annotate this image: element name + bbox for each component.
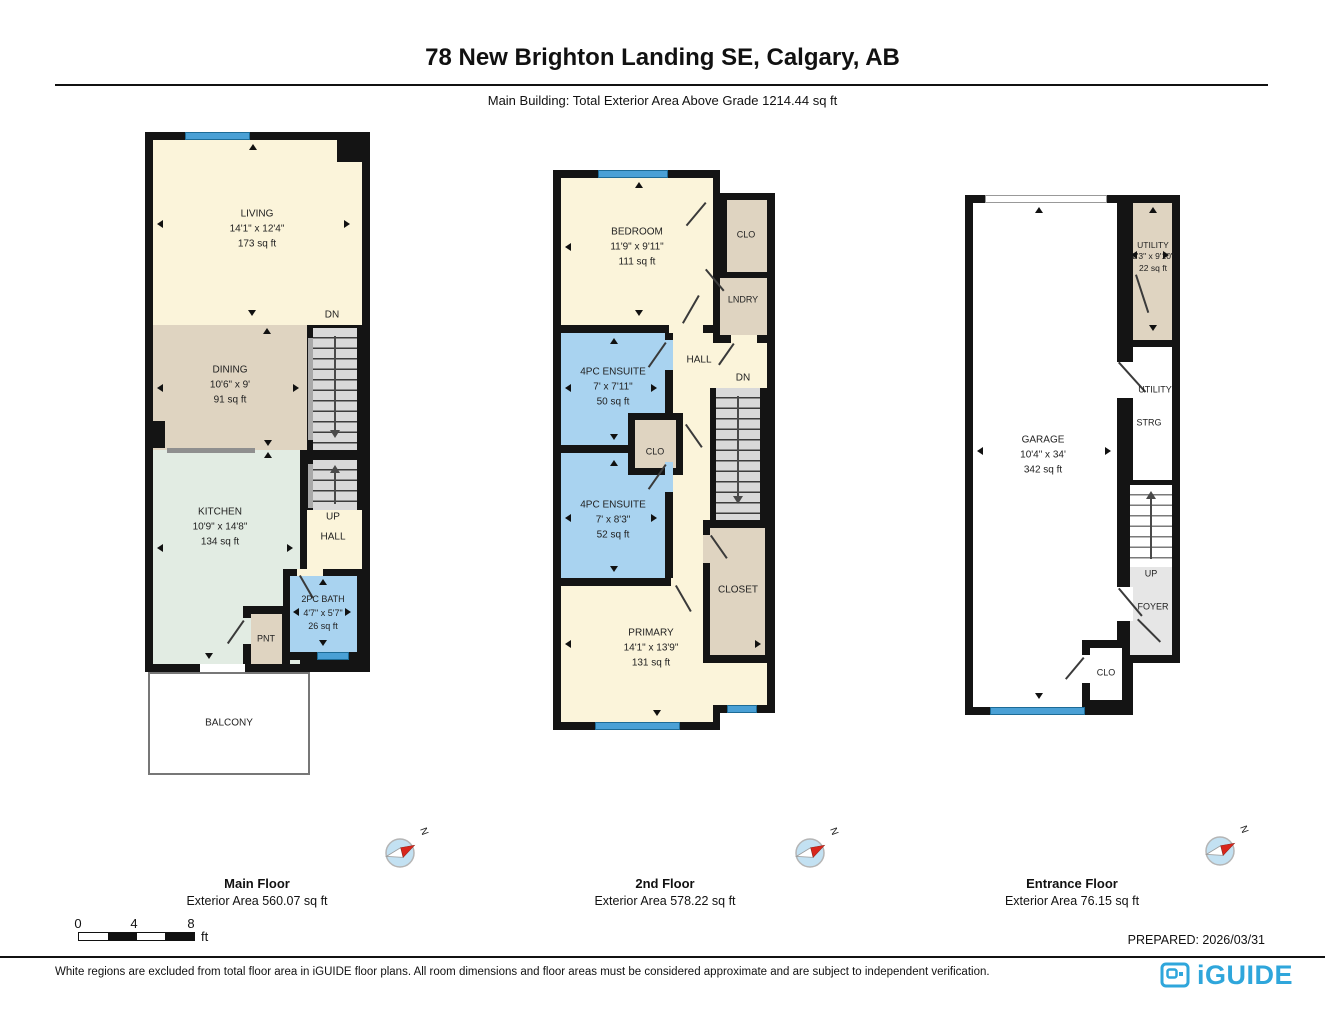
label-foyer: FOYER xyxy=(1137,600,1168,614)
dimension-arrow xyxy=(248,310,256,316)
room-label-garage: GARAGE 10'4" x 34' 342 sq ft xyxy=(1020,433,1066,478)
floor-name: Entrance Floor xyxy=(947,876,1197,891)
floor-area: Exterior Area 578.22 sq ft xyxy=(540,894,790,908)
dimension-arrow xyxy=(977,447,983,455)
label-closet-mid: CLO xyxy=(646,445,665,459)
dimension-arrow xyxy=(565,640,571,648)
window xyxy=(598,170,668,178)
scale-tick: 0 xyxy=(72,916,84,931)
room-closet-mid xyxy=(635,420,676,468)
stair-arrow xyxy=(1150,499,1152,559)
stair-arrow-head xyxy=(1146,491,1156,499)
wall xyxy=(337,132,370,162)
window xyxy=(990,707,1085,715)
dimension-arrow xyxy=(157,220,163,228)
room-label-ensuite-1: 4PC ENSUITE 7' x 7'11" 50 sq ft xyxy=(580,365,646,410)
dimension-arrow xyxy=(565,514,571,522)
stair-arrow xyxy=(334,472,336,504)
room-label-living: LIVING 14'1" x 12'4" 173 sq ft xyxy=(230,207,285,252)
dimension-arrow xyxy=(610,566,618,572)
stair-arrow xyxy=(334,336,336,432)
label-closet-top: CLO xyxy=(737,228,756,242)
iguide-logo: iGUIDE xyxy=(1160,956,1293,994)
door-opening xyxy=(1117,362,1133,398)
scale-tick: 4 xyxy=(128,916,140,931)
door-opening xyxy=(731,335,757,343)
floor-area: Exterior Area 560.07 sq ft xyxy=(132,894,382,908)
disclaimer-text: White regions are excluded from total fl… xyxy=(55,966,1055,978)
compass-north-label: N xyxy=(827,826,840,837)
dimension-arrow xyxy=(1035,207,1043,213)
dimension-arrow xyxy=(293,384,299,392)
label-closet: CLOSET xyxy=(718,583,758,598)
dimension-arrow xyxy=(157,544,163,552)
dimension-arrow xyxy=(287,544,293,552)
dimension-arrow xyxy=(565,384,571,392)
door-opening xyxy=(1082,655,1090,683)
scale-unit: ft xyxy=(201,929,208,944)
label-balcony: BALCONY xyxy=(205,716,253,731)
label-laundry: LNDRY xyxy=(728,293,758,307)
door-opening xyxy=(297,569,323,576)
compass-rose xyxy=(1200,827,1244,871)
dimension-arrow xyxy=(635,182,643,188)
dimension-arrow xyxy=(1131,251,1137,259)
compass-north-label: N xyxy=(417,826,430,837)
door-opening xyxy=(703,535,710,563)
dimension-arrow xyxy=(755,640,761,648)
scale-bar-segments xyxy=(78,932,195,941)
window xyxy=(727,705,757,713)
dimension-arrow xyxy=(610,460,618,466)
door-opening xyxy=(665,462,673,492)
floor-name: 2nd Floor xyxy=(540,876,790,891)
dimension-arrow xyxy=(345,608,351,616)
label-storage: STRG xyxy=(1136,416,1161,430)
floor-plan-entrance-floor: GARAGE 10'4" x 34' 342 sq ft UTILITY 2'3… xyxy=(965,195,1180,715)
compass-rose xyxy=(790,829,834,873)
page-subtitle: Main Building: Total Exterior Area Above… xyxy=(0,93,1325,108)
stair-arrow-head xyxy=(733,496,743,504)
compass-icon: N xyxy=(380,829,424,873)
room-label-bedroom: BEDROOM 11'9" x 9'11" 111 sq ft xyxy=(610,225,663,270)
dimension-arrow xyxy=(344,220,350,228)
dimension-arrow xyxy=(1105,447,1111,455)
page-title: 78 New Brighton Landing SE, Calgary, AB xyxy=(0,44,1325,72)
label-up: UP xyxy=(1145,567,1158,581)
window xyxy=(595,722,680,730)
door-opening xyxy=(665,340,673,370)
dimension-arrow xyxy=(157,384,163,392)
dimension-arrow xyxy=(319,579,327,585)
label-pantry: PNT xyxy=(257,632,275,646)
dimension-arrow xyxy=(263,328,271,334)
room-label-primary: PRIMARY 14'1" x 13'9" 131 sq ft xyxy=(624,626,679,671)
dimension-arrow xyxy=(293,608,299,616)
caption-2nd-floor: 2nd Floor Exterior Area 578.22 sq ft xyxy=(540,876,790,908)
prepared-date: PREPARED: 2026/03/31 xyxy=(1020,933,1265,947)
dimension-arrow xyxy=(635,310,643,316)
compass-north-label: N xyxy=(1237,824,1250,835)
dimension-arrow xyxy=(319,640,327,646)
dimension-arrow xyxy=(1149,207,1157,213)
dimension-arrow xyxy=(1149,325,1157,331)
floor-area: Exterior Area 76.15 sq ft xyxy=(947,894,1197,908)
wall xyxy=(145,421,165,448)
caption-main-floor: Main Floor Exterior Area 560.07 sq ft xyxy=(132,876,382,908)
dimension-arrow xyxy=(651,514,657,522)
caption-entrance-floor: Entrance Floor Exterior Area 76.15 sq ft xyxy=(947,876,1197,908)
room-label-kitchen: KITCHEN 10'9" x 14'8" 134 sq ft xyxy=(193,505,248,550)
dimension-arrow xyxy=(264,440,272,446)
kitchen-counter xyxy=(167,448,255,453)
label-dn: DN xyxy=(736,371,750,386)
dimension-arrow xyxy=(651,384,657,392)
garage-door xyxy=(985,195,1107,203)
footer-divider xyxy=(0,956,1325,958)
room-label-dining: DINING 10'6" x 9' 91 sq ft xyxy=(210,363,250,408)
title-divider xyxy=(55,84,1268,86)
window xyxy=(317,652,349,660)
stair-railing xyxy=(308,338,313,440)
compass-rose xyxy=(380,829,424,873)
stairs-up xyxy=(1130,485,1172,567)
floor-plan-page: 78 New Brighton Landing SE, Calgary, AB … xyxy=(0,0,1325,1024)
window xyxy=(185,132,250,140)
dimension-arrow xyxy=(1163,251,1169,259)
floor-plan-2nd-floor: BEDROOM 11'9" x 9'11" 111 sq ft CLO LNDR… xyxy=(553,170,775,735)
room-label-bath: 2PC BATH 4'7" x 5'7" 26 sq ft xyxy=(301,593,344,634)
room-utility-storage xyxy=(1133,347,1172,480)
compass-icon: N xyxy=(1200,827,1244,871)
stair-railing xyxy=(308,464,313,508)
dimension-arrow xyxy=(610,434,618,440)
label-utility: UTILITY xyxy=(1138,383,1172,397)
dimension-arrow xyxy=(1035,693,1043,699)
iguide-logo-text: iGUIDE xyxy=(1197,960,1293,991)
scale-tick: 8 xyxy=(185,916,197,931)
compass-icon: N xyxy=(790,829,834,873)
door-opening xyxy=(243,618,251,644)
stairs-down xyxy=(710,388,760,520)
label-dn: DN xyxy=(325,308,339,323)
dimension-arrow xyxy=(653,710,661,716)
floor-name: Main Floor xyxy=(132,876,382,891)
dimension-arrow xyxy=(565,243,571,251)
dimension-arrow xyxy=(205,653,213,659)
iguide-logo-icon xyxy=(1160,962,1190,988)
room-primary xyxy=(561,705,713,722)
stair-arrow-head xyxy=(330,430,340,438)
dimension-arrow xyxy=(249,144,257,150)
stairs-up xyxy=(313,460,357,510)
dimension-arrow xyxy=(264,452,272,458)
door-opening xyxy=(200,664,245,672)
door-opening xyxy=(669,325,703,333)
room-label-ensuite-2: 4PC ENSUITE 7' x 8'3" 52 sq ft xyxy=(580,498,646,543)
stair-arrow xyxy=(737,396,739,498)
floor-plan-main-floor: LIVING 14'1" x 12'4" 173 sq ft DN DINING… xyxy=(145,132,370,775)
dimension-arrow xyxy=(610,338,618,344)
label-hall: HALL xyxy=(686,353,711,368)
stairs-down xyxy=(313,328,357,450)
label-clo: CLO xyxy=(1097,666,1116,680)
label-hall: HALL xyxy=(320,530,345,545)
label-up: UP xyxy=(326,510,340,525)
